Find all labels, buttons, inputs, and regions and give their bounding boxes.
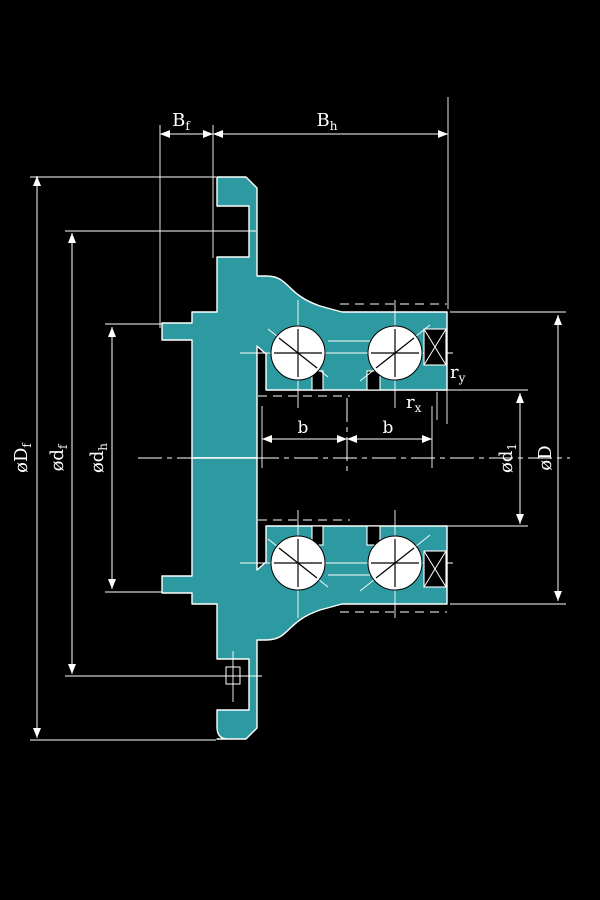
label-Bh: Bh xyxy=(317,110,338,133)
label-b-right: b xyxy=(383,418,394,438)
hub-flange-bottom-section xyxy=(162,458,447,739)
technical-drawing-canvas: Bf Bh øDf ødf ødh ød1 øD b b ry rx xyxy=(0,0,600,900)
label-pilot-diameter: ødh xyxy=(87,443,110,473)
label-b-left: b xyxy=(298,418,309,438)
label-inner-diameter: ød1 xyxy=(496,443,519,473)
label-outer-diameter: øD xyxy=(535,445,556,470)
hub-bearing-cross-section-drawing: Bf Bh øDf ødf ødh ød1 øD b b ry rx xyxy=(0,0,600,900)
label-Bf: Bf xyxy=(172,110,191,133)
label-bolt-circle: ødf xyxy=(47,443,70,471)
label-rx: rx xyxy=(406,392,422,415)
hub-flange-top-section xyxy=(162,177,447,458)
label-flange-od: øDf xyxy=(11,442,34,473)
label-ry: ry xyxy=(450,362,466,385)
